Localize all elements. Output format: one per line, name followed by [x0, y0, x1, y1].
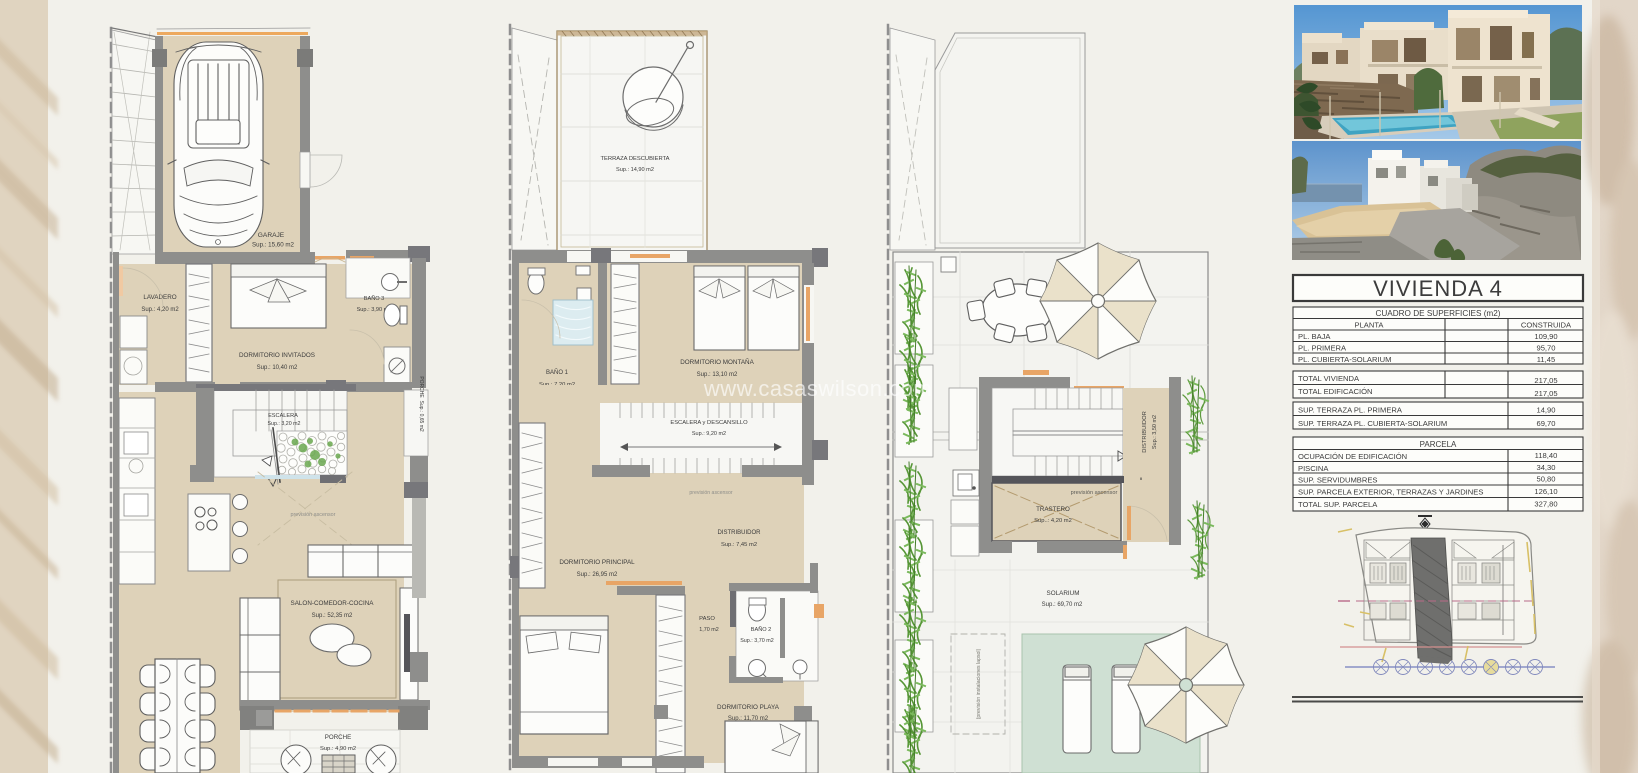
- svg-text:TOTAL SUP. PARCELA: TOTAL SUP. PARCELA: [1298, 500, 1378, 509]
- svg-text:69,70: 69,70: [1536, 419, 1555, 428]
- svg-text:SOLARIUM: SOLARIUM: [1047, 590, 1080, 597]
- svg-text:CUADRO DE SUPERFICIES (m2): CUADRO DE SUPERFICIES (m2): [1375, 309, 1500, 318]
- svg-text:Sup.: 26,95 m2: Sup.: 26,95 m2: [577, 572, 618, 578]
- svg-text:Sup.: 3,70 m2: Sup.: 3,70 m2: [740, 638, 774, 644]
- svg-text:34,30: 34,30: [1536, 463, 1555, 472]
- svg-text:126,10: 126,10: [1534, 487, 1557, 496]
- svg-text:TERRAZA DESCUBIERTA: TERRAZA DESCUBIERTA: [600, 156, 669, 162]
- svg-text:PASO: PASO: [699, 616, 715, 622]
- svg-text:CONSTRUIDA: CONSTRUIDA: [1521, 321, 1572, 330]
- svg-text:217,05: 217,05: [1534, 389, 1557, 398]
- svg-text:(previsión instalaciones lapso: (previsión instalaciones lapsol): [976, 648, 982, 719]
- svg-text:www.casaswilson.com: www.casaswilson.com: [703, 376, 932, 401]
- svg-text:14,90: 14,90: [1536, 406, 1555, 415]
- svg-text:DORMITORIO PRINCIPAL: DORMITORIO PRINCIPAL: [559, 559, 635, 566]
- svg-text:Sup.: 3,50 m2: Sup.: 3,50 m2: [1152, 415, 1158, 449]
- svg-text:TRASTERO: TRASTERO: [1036, 506, 1070, 513]
- svg-text:GARAJE: GARAJE: [258, 232, 285, 239]
- svg-text:DORMITORIO MONTAÑA: DORMITORIO MONTAÑA: [680, 357, 754, 366]
- svg-text:95,70: 95,70: [1536, 344, 1555, 353]
- svg-text:PL. CUBIERTA-SOLARIUM: PL. CUBIERTA-SOLARIUM: [1298, 355, 1391, 364]
- svg-text:Sup.: 52,35 m2: Sup.: 52,35 m2: [312, 613, 353, 619]
- svg-text:SUP. TERRAZA PL. CUBIERTA-SOLA: SUP. TERRAZA PL. CUBIERTA-SOLARIUM: [1298, 419, 1447, 428]
- svg-text:PLANTA: PLANTA: [1355, 321, 1385, 330]
- svg-text:Sup.: 9,20 m2: Sup.: 9,20 m2: [692, 431, 726, 437]
- svg-text:Sup.: 4,20 m2: Sup.: 4,20 m2: [141, 307, 179, 313]
- svg-text:SUP. TERRAZA PL. PRIMERA: SUP. TERRAZA PL. PRIMERA: [1298, 406, 1403, 415]
- svg-text:PORCHE: PORCHE: [325, 734, 351, 741]
- svg-text:SUP. SERVIDUMBRES: SUP. SERVIDUMBRES: [1298, 476, 1377, 485]
- svg-text:109,90: 109,90: [1534, 332, 1557, 341]
- svg-text:Sup.: 4,90 m2: Sup.: 4,90 m2: [320, 746, 356, 752]
- svg-text:118,40: 118,40: [1535, 451, 1558, 460]
- svg-text:DISTRIBUIDOR: DISTRIBUIDOR: [1142, 411, 1148, 453]
- svg-text:PL. PRIMERA: PL. PRIMERA: [1298, 344, 1347, 353]
- svg-text:SALON-COMEDOR-COCINA: SALON-COMEDOR-COCINA: [291, 600, 375, 607]
- svg-text:1,70 m2: 1,70 m2: [699, 627, 718, 633]
- svg-text:50,80: 50,80: [1536, 475, 1555, 484]
- svg-text:Sup.: 69,70 m2: Sup.: 69,70 m2: [1042, 602, 1083, 608]
- svg-text:previsión ascensor: previsión ascensor: [1071, 490, 1118, 496]
- svg-text:DORMITORIO PLAYA: DORMITORIO PLAYA: [717, 704, 780, 711]
- svg-text:Sup.: 10,40 m2: Sup.: 10,40 m2: [257, 365, 298, 371]
- svg-text:217,05: 217,05: [1534, 376, 1557, 385]
- svg-text:Sup..: 4,20 m2: Sup..: 4,20 m2: [1034, 518, 1072, 524]
- svg-text:DORMITORIO INVITADOS: DORMITORIO INVITADOS: [239, 352, 315, 359]
- svg-text:DISTRIBUIDOR: DISTRIBUIDOR: [717, 530, 761, 536]
- svg-text:327,80: 327,80: [1534, 500, 1557, 509]
- svg-text:11,45: 11,45: [1537, 355, 1555, 364]
- svg-text:SUP. PARCELA EXTERIOR, TERRAZA: SUP. PARCELA EXTERIOR, TERRAZAS Y JARDIN…: [1298, 488, 1483, 497]
- svg-text:Sup.: 7,45 m2: Sup.: 7,45 m2: [721, 542, 757, 548]
- svg-text:Sup.: 3,20 m2: Sup.: 3,20 m2: [268, 421, 301, 427]
- svg-text:ESCALERA: ESCALERA: [268, 413, 298, 419]
- svg-text:TOTAL EDIFICACIÓN: TOTAL EDIFICACIÓN: [1298, 387, 1373, 396]
- svg-text:previsión ascensor: previsión ascensor: [689, 490, 733, 496]
- svg-text:Sup.: 15,60 m2: Sup.: 15,60 m2: [252, 242, 295, 249]
- svg-text:PARCELA: PARCELA: [1420, 440, 1457, 449]
- svg-text:LAVADERO: LAVADERO: [143, 294, 176, 301]
- svg-text:Sup.: 14,90 m2: Sup.: 14,90 m2: [616, 167, 654, 173]
- svg-text:BAÑO 1: BAÑO 1: [546, 369, 569, 376]
- svg-text:TOTAL VIVIENDA: TOTAL VIVIENDA: [1298, 374, 1360, 383]
- svg-text:BAÑO 2: BAÑO 2: [751, 626, 772, 633]
- svg-text:ESCALERA y DESCANSILLO: ESCALERA y DESCANSILLO: [670, 420, 748, 426]
- svg-text:BAÑO 3: BAÑO 3: [364, 295, 385, 302]
- svg-text:PORCHE Sup.: 0,65 m2: PORCHE Sup.: 0,65 m2: [418, 376, 424, 432]
- svg-text:previsión ascensor: previsión ascensor: [291, 512, 336, 518]
- svg-text:PL. BAJA: PL. BAJA: [1298, 332, 1331, 341]
- svg-text:PISCINA: PISCINA: [1298, 464, 1329, 473]
- svg-text:OCUPACIÓN DE EDIFICACIÓN: OCUPACIÓN DE EDIFICACIÓN: [1298, 452, 1407, 461]
- svg-text:VIVIENDA 4: VIVIENDA 4: [1373, 276, 1503, 301]
